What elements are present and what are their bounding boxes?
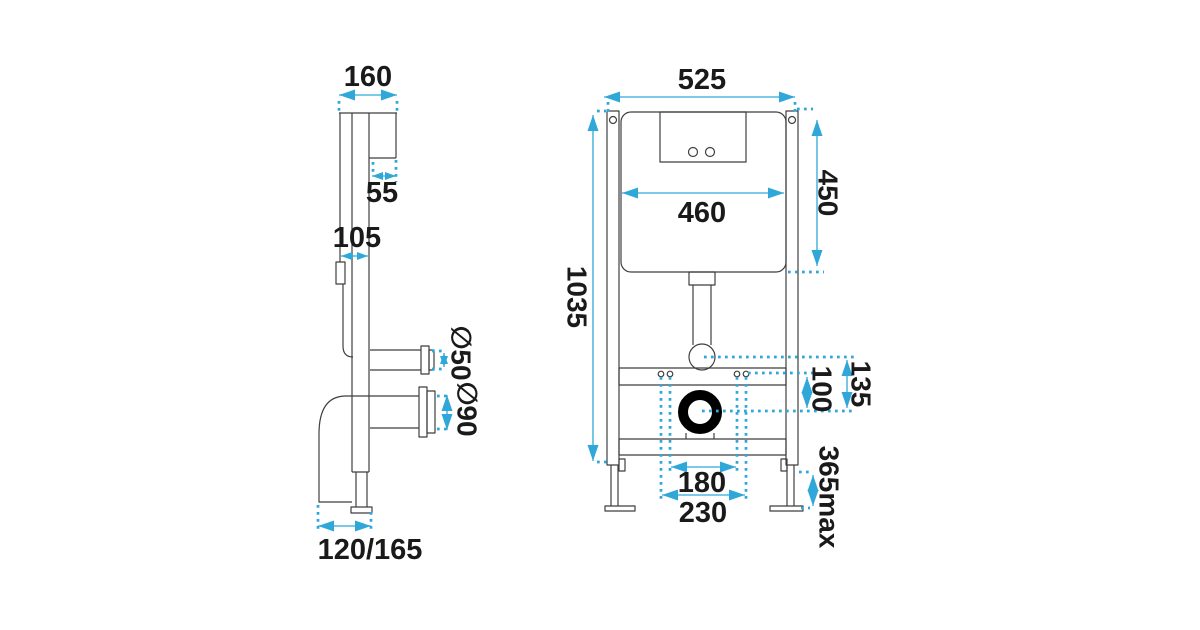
side-leg [352, 472, 369, 507]
dim-fixing-to-waste-offset: 100 [748, 366, 838, 413]
waste-bracket-spacing-label: 180 [678, 467, 726, 499]
fixing-to-waste-offset-label: 100 [807, 366, 838, 413]
flush-pipe-diameter-label: ∅50 [446, 325, 477, 380]
waste-pipe-coupling [419, 387, 427, 437]
hanger-hole-right [789, 117, 796, 124]
flush-button-right [706, 148, 715, 157]
flush-pipe-collar [689, 272, 715, 285]
frame-height-label: 1035 [562, 266, 593, 328]
side-view [319, 113, 435, 513]
dim-cistern-height: 450 [788, 109, 844, 272]
cistern-height-label: 450 [813, 170, 844, 217]
flush-pipe-side [370, 350, 421, 370]
adjustable-leg-left [611, 465, 618, 506]
wall-bracket [369, 113, 396, 158]
waste-pipe-side [346, 396, 419, 428]
waste-pipe-diameter-label: ∅90 [452, 381, 483, 436]
dim-flush-pipe-diameter: ∅50 [432, 325, 477, 380]
floor-outlet-projection-label: 120/165 [318, 534, 423, 566]
dim-rail-depth: 105 [333, 222, 381, 256]
hanger-hole-left [610, 117, 617, 124]
fixing-hole [734, 371, 740, 377]
cistern-width-label: 460 [678, 197, 726, 229]
dim-floor-outlet-projection: 120/165 [318, 505, 423, 566]
rail-depth-label: 105 [333, 222, 381, 254]
dim-overall-width: 525 [604, 64, 795, 113]
dim-wall-bracket-depth: 55 [366, 160, 398, 209]
overall-depth-label: 160 [344, 61, 392, 93]
dim-fixing-bolt-spacing: 230 [662, 495, 745, 529]
technical-drawing-page: 160 55 105 ∅50 ∅90 120/165 [0, 0, 1200, 630]
concealed-cistern-frame-diagram: 160 55 105 ∅50 ∅90 120/165 [0, 0, 1200, 630]
fixing-hole [743, 371, 749, 377]
side-frame-profile [339, 113, 397, 472]
flush-to-waste-offset-label: 135 [846, 361, 877, 408]
flush-plate-recess [660, 112, 746, 162]
flush-pipe-front [693, 285, 711, 345]
front-view [605, 111, 803, 511]
flush-button-left [689, 148, 698, 157]
dim-leg-adjustment: 365max [799, 446, 845, 549]
rail-clip-left [619, 459, 625, 471]
waste-pipe-coupling-cap [427, 391, 435, 433]
foot-plate-left [605, 506, 635, 511]
wall-bracket-depth-label: 55 [366, 177, 398, 209]
overall-width-label: 525 [678, 64, 726, 96]
dim-waste-pipe-diameter: ∅90 [437, 381, 483, 436]
supply-valve-block [336, 262, 345, 284]
cistern-tank [621, 112, 786, 272]
leg-adjustment-label: 365max [814, 446, 845, 549]
adjustable-leg-right [787, 465, 794, 506]
waste-elbow [319, 396, 352, 502]
flush-pipe-coupling [421, 346, 429, 374]
flush-pipe-coupling-cap [429, 350, 434, 370]
dim-frame-height: 1035 [562, 111, 608, 462]
side-foot-plate [351, 507, 372, 513]
frame-rail-left [607, 111, 619, 465]
fixing-bolt-spacing-label: 230 [679, 497, 727, 529]
support-bar-lower [619, 439, 786, 455]
dim-cistern-width: 460 [622, 193, 784, 229]
foot-plate-right [770, 506, 803, 511]
fixing-hole [658, 371, 664, 377]
waste-outlet-ring [683, 395, 717, 429]
fixing-hole [667, 371, 673, 377]
dim-overall-depth: 160 [339, 61, 397, 113]
dim-flush-to-waste-offset: 135 [702, 357, 877, 411]
